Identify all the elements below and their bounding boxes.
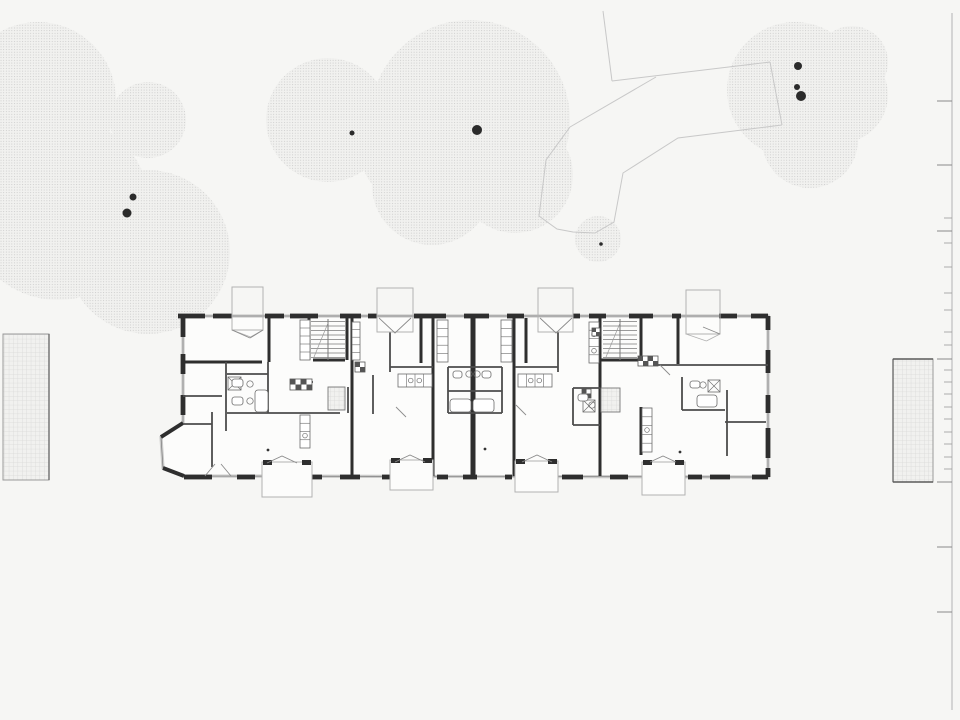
site-plan-drawing	[0, 0, 960, 720]
kitchen-counter	[398, 374, 432, 387]
service-shaft	[638, 356, 648, 366]
kitchen-counter	[300, 320, 310, 360]
toilet	[482, 371, 491, 378]
tree-trunk	[130, 194, 137, 201]
lift-shaft	[328, 387, 345, 410]
bathtub	[450, 399, 471, 412]
paved-area-right	[893, 359, 933, 482]
kitchen-counter	[352, 322, 360, 360]
toilet	[232, 397, 243, 405]
tree-trunk	[794, 84, 800, 90]
toilet	[690, 381, 700, 388]
bathtub	[473, 399, 494, 412]
kitchen-counter	[300, 415, 310, 448]
tree-canopy-center	[360, 20, 573, 245]
toilet	[232, 379, 243, 387]
tree-trunk	[350, 131, 355, 136]
toilet	[578, 394, 588, 401]
tree-trunk	[599, 242, 603, 246]
scale-ruler	[937, 13, 952, 710]
service-shaft	[648, 356, 658, 366]
tree-canopy-small	[575, 216, 621, 262]
bathtub	[255, 390, 268, 412]
site-plan-scene	[0, 0, 960, 720]
building-floor-plan	[161, 287, 770, 497]
service-shaft	[355, 362, 365, 372]
garden-porch	[642, 462, 685, 495]
toilet	[453, 371, 462, 378]
tree-trunk	[794, 62, 802, 70]
tree-canopy-top-left	[0, 22, 230, 334]
service-shaft	[290, 379, 301, 390]
kitchen-counter	[501, 320, 512, 362]
tree-canopies	[0, 20, 888, 334]
service-shaft	[592, 328, 600, 336]
tree-trunk	[796, 91, 806, 101]
kitchen-counter	[642, 408, 652, 452]
kitchen-counter	[518, 374, 552, 387]
garden-porch	[515, 461, 558, 492]
service-shaft	[301, 379, 312, 390]
tree-trunk	[472, 125, 482, 135]
garden-porch	[390, 460, 433, 490]
paved-area-left	[3, 334, 49, 480]
kitchen-counter	[437, 320, 448, 362]
lift-shaft	[601, 388, 620, 412]
tree-canopy-top-right	[727, 22, 888, 188]
bathtub	[697, 395, 717, 407]
tree-trunk	[123, 209, 132, 218]
garden-porch	[262, 462, 312, 497]
